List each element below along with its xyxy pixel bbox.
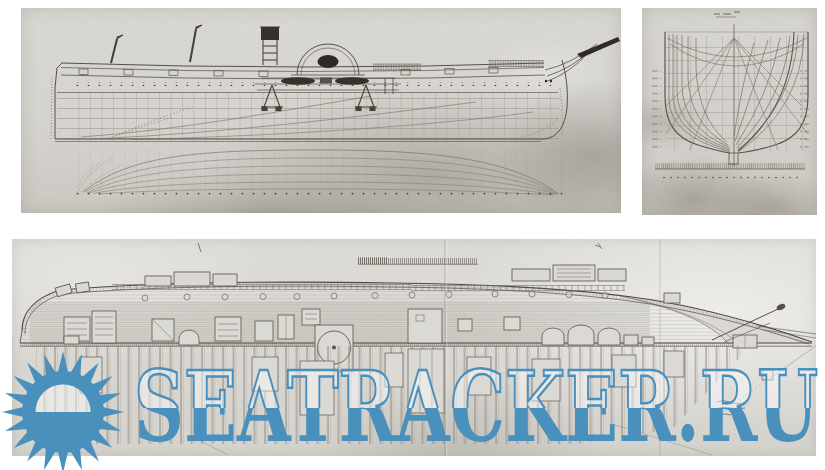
funnel	[260, 27, 280, 65]
scale-comb	[198, 243, 602, 264]
gunport-row	[79, 68, 498, 77]
half-breadth-plan	[73, 150, 569, 196]
handwritten-note	[715, 401, 745, 416]
panel-body-plan	[642, 8, 817, 215]
deck-plan-drawing	[12, 239, 816, 456]
left-tick-scale	[652, 70, 661, 150]
panel-side-profile	[21, 8, 621, 213]
paddle-box	[291, 44, 365, 75]
right-tick-scale	[800, 70, 809, 150]
side-profile-drawing	[21, 8, 621, 213]
title-marks	[714, 12, 740, 17]
body-plan-drawing	[642, 8, 817, 215]
frame-grid	[57, 92, 559, 142]
masts	[111, 25, 202, 63]
panel-deck-plan	[12, 239, 816, 456]
bowsprit	[577, 37, 620, 58]
scanned-ship-plans-page: SEATRACKER.RU SEATRACKER.RU	[0, 0, 825, 470]
scale-bar	[655, 163, 805, 179]
section-grid	[666, 36, 807, 151]
paddle-box-oval	[318, 55, 339, 68]
